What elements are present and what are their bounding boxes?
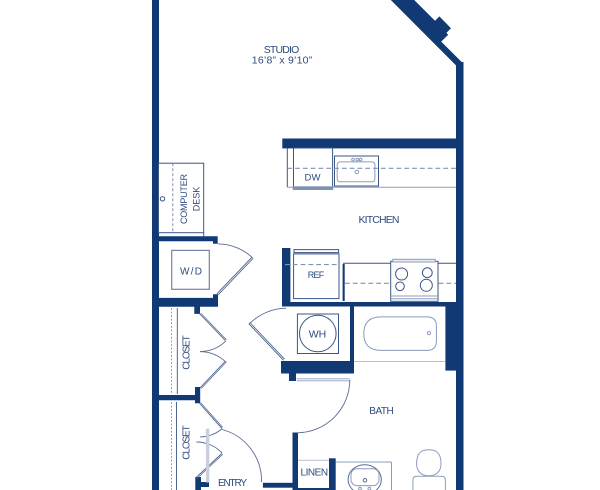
svg-text:COMPUTER: COMPUTER — [179, 174, 189, 225]
svg-text:REF: REF — [308, 270, 325, 280]
svg-text:LINEN: LINEN — [301, 467, 329, 478]
svg-text:DW: DW — [305, 173, 321, 184]
svg-text:CLOSET: CLOSET — [182, 425, 193, 460]
svg-text:W/D: W/D — [180, 267, 202, 278]
svg-text:WH: WH — [309, 329, 327, 341]
svg-text:CLOSET: CLOSET — [182, 335, 193, 370]
svg-text:BATH: BATH — [369, 406, 394, 417]
svg-text:DESK: DESK — [192, 187, 202, 212]
svg-text:KITCHEN: KITCHEN — [359, 214, 400, 226]
svg-text:16’8” x 9’10”: 16’8” x 9’10” — [252, 55, 313, 67]
svg-text:ENTRY: ENTRY — [218, 478, 247, 489]
